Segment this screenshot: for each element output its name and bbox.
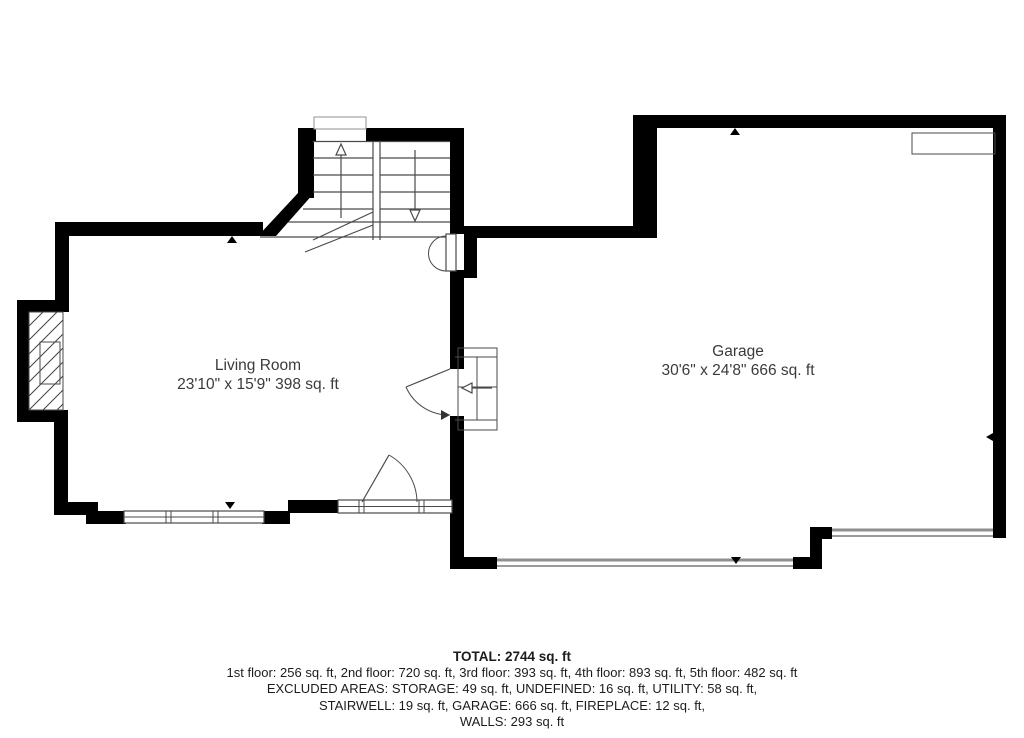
floor-areas-line: 1st floor: 256 sq. ft, 2nd floor: 720 sq…: [0, 665, 1024, 681]
excluded-areas-line-1: EXCLUDED AREAS: STORAGE: 49 sq. ft, UNDE…: [0, 681, 1024, 697]
area-summary: TOTAL: 2744 sq. ft 1st floor: 256 sq. ft…: [0, 649, 1024, 730]
upper-interior-door: [429, 234, 457, 271]
garage-label: Garage: [712, 343, 764, 360]
garage-door-right: [832, 530, 993, 536]
walls-area-line: WALLS: 293 sq. ft: [0, 714, 1024, 730]
floor-plan-drawing: Living Room 23'10" x 15'9" 398 sq. ft Ga…: [0, 0, 1024, 645]
stairs-down-arrow-icon: [410, 150, 420, 221]
living-room-label: Living Room: [215, 357, 301, 374]
patio-door-window-run: [338, 500, 452, 513]
garage-walls: [450, 115, 1006, 569]
garage-entry-door: [406, 369, 450, 420]
garage-dimensions: 30'6" x 24'8" 666 sq. ft: [661, 362, 815, 379]
total-area-line: TOTAL: 2744 sq. ft: [0, 649, 1024, 665]
garage-door-main: [497, 560, 793, 566]
patio-swing-door: [362, 455, 417, 502]
stairwell-walls: [258, 128, 464, 236]
fireplace-hatch: [29, 312, 63, 410]
garage-storage-shelf: [912, 133, 995, 154]
living-room-dimensions: 23'10" x 15'9" 398 sq. ft: [177, 376, 339, 393]
direction-tick-icons: [225, 128, 993, 564]
stair-opening-above: [314, 117, 366, 129]
stairs-up-arrow-icon: [336, 144, 346, 218]
floor-plan-page: Living Room 23'10" x 15'9" 398 sq. ft Ga…: [0, 0, 1024, 738]
living-room-bottom-window: [124, 511, 264, 523]
excluded-areas-line-2: STAIRWELL: 19 sq. ft, GARAGE: 666 sq. ft…: [0, 698, 1024, 714]
fireplace: [17, 300, 63, 422]
